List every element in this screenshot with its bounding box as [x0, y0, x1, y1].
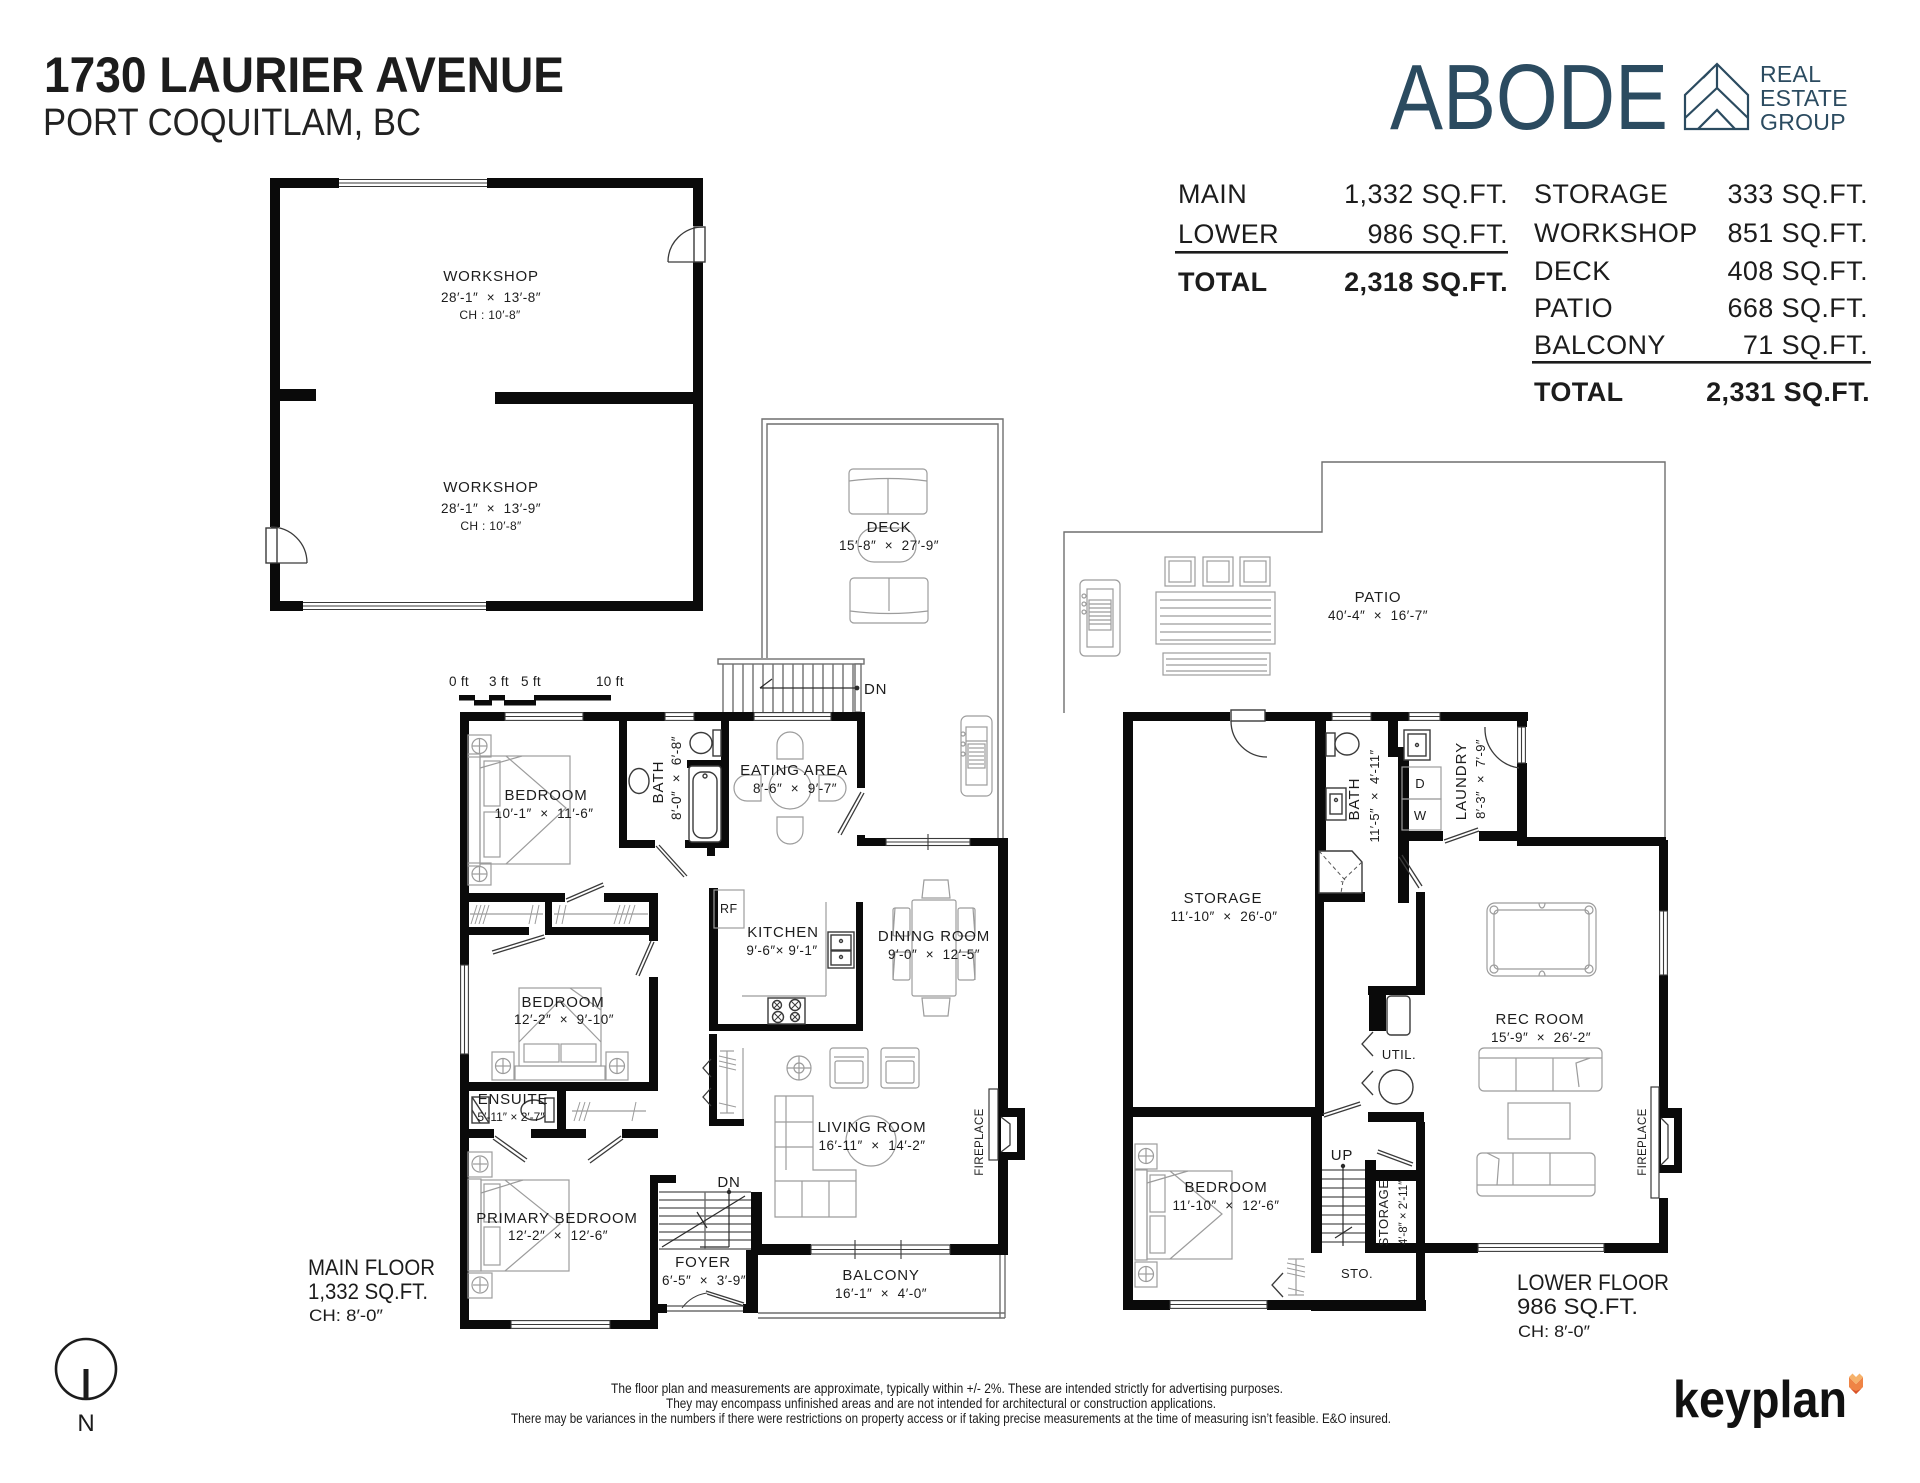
svg-text:16′-11″ × 14′-2″: 16′-11″ × 14′-2″ [818, 1138, 925, 1153]
svg-text:D: D [1415, 776, 1424, 791]
svg-text:PATIO: PATIO [1534, 293, 1613, 323]
svg-text:UP: UP [1331, 1147, 1353, 1164]
svg-text:BEDROOM: BEDROOM [1184, 1179, 1267, 1196]
svg-text:986 SQ.FT.: 986 SQ.FT. [1517, 1294, 1638, 1319]
svg-text:PRIMARY BEDROOM: PRIMARY BEDROOM [476, 1210, 637, 1227]
svg-text:DECK: DECK [867, 519, 912, 536]
svg-text:MAIN: MAIN [1178, 179, 1247, 209]
svg-text:8′-6″ × 9′-7″: 8′-6″ × 9′-7″ [753, 781, 837, 796]
svg-text:PATIO: PATIO [1355, 589, 1402, 606]
svg-text:TOTAL: TOTAL [1534, 377, 1624, 407]
svg-text:LIVING ROOM: LIVING ROOM [818, 1119, 927, 1136]
svg-text:STORAGE: STORAGE [1184, 890, 1263, 907]
svg-text:keyplan: keyplan [1673, 1371, 1847, 1429]
svg-text:RF: RF [720, 902, 738, 916]
svg-text:8′-3″ × 7′-9″: 8′-3″ × 7′-9″ [1473, 739, 1488, 819]
svg-text:ESTATE: ESTATE [1760, 85, 1848, 111]
svg-text:FIREPLACE: FIREPLACE [974, 1108, 986, 1176]
svg-text:11′-10″ × 26′-0″: 11′-10″ × 26′-0″ [1170, 909, 1277, 924]
svg-text:71 SQ.FT.: 71 SQ.FT. [1743, 330, 1868, 360]
svg-text:WORKSHOP: WORKSHOP [443, 268, 539, 285]
svg-text:15′-9″ × 26′-2″: 15′-9″ × 26′-2″ [1491, 1030, 1591, 1045]
svg-text:11′-5″ × 4′-11″: 11′-5″ × 4′-11″ [1367, 749, 1382, 842]
svg-text:10′-1″ × 11′-6″: 10′-1″ × 11′-6″ [494, 806, 593, 821]
svg-text:DECK: DECK [1534, 256, 1611, 286]
svg-text:28′-1″ × 13′-8″: 28′-1″ × 13′-8″ [441, 290, 541, 305]
svg-text:0 ft: 0 ft [449, 674, 469, 689]
svg-text:8′-0″ × 6′-8″: 8′-0″ × 6′-8″ [669, 736, 684, 820]
svg-text:6′-5″ × 3′-9″: 6′-5″ × 3′-9″ [662, 1273, 746, 1288]
svg-text:ENSUITE: ENSUITE [478, 1091, 549, 1108]
svg-text:851 SQ.FT.: 851 SQ.FT. [1727, 218, 1868, 248]
svg-text:PORT COQUITLAM, BC: PORT COQUITLAM, BC [43, 102, 421, 144]
svg-text:28′-1″ × 13′-9″: 28′-1″ × 13′-9″ [441, 501, 541, 516]
svg-text:11′-10″ × 12′-6″: 11′-10″ × 12′-6″ [1172, 1198, 1279, 1213]
svg-text:STORAGE: STORAGE [1534, 179, 1668, 209]
svg-text:BALCONY: BALCONY [842, 1267, 919, 1284]
svg-text:KITCHEN: KITCHEN [747, 924, 818, 941]
svg-text:TOTAL: TOTAL [1178, 267, 1268, 297]
svg-text:4′-8″ × 2′-11″: 4′-8″ × 2′-11″ [1398, 1181, 1410, 1245]
svg-text:DINING ROOM: DINING ROOM [878, 928, 990, 945]
svg-text:16′-1″ × 4′-0″: 16′-1″ × 4′-0″ [835, 1286, 927, 1301]
svg-text:GROUP: GROUP [1760, 109, 1846, 135]
svg-text:REC ROOM: REC ROOM [1496, 1011, 1585, 1028]
svg-text:STORAGE: STORAGE [1376, 1180, 1391, 1247]
svg-text:There may be variances in the: There may be variances in the numbers if… [511, 1411, 1391, 1426]
svg-text:5′-11″ × 2′-7″: 5′-11″ × 2′-7″ [477, 1110, 545, 1124]
svg-text:2,331 SQ.FT.: 2,331 SQ.FT. [1706, 377, 1870, 407]
svg-text:REAL: REAL [1760, 61, 1821, 87]
svg-text:FIREPLACE: FIREPLACE [1637, 1108, 1649, 1176]
svg-text:DN: DN [717, 1174, 740, 1191]
svg-text:5 ft: 5 ft [521, 674, 541, 689]
svg-text:1730 LAURIER AVENUE: 1730 LAURIER AVENUE [44, 47, 564, 103]
svg-text:They may encompass unfinished: They may encompass unfinished areas and … [666, 1396, 1216, 1411]
svg-text:FOYER: FOYER [675, 1254, 731, 1271]
svg-text:The floor plan and measurement: The floor plan and measurements are appr… [611, 1381, 1283, 1396]
svg-text:9′-0″ × 12′-5″: 9′-0″ × 12′-5″ [888, 947, 980, 962]
svg-text:10 ft: 10 ft [596, 674, 624, 689]
svg-text:408 SQ.FT.: 408 SQ.FT. [1727, 256, 1868, 286]
svg-text:333 SQ.FT.: 333 SQ.FT. [1727, 179, 1868, 209]
svg-text:1,332 SQ.FT.: 1,332 SQ.FT. [308, 1279, 428, 1304]
svg-text:BALCONY: BALCONY [1534, 330, 1666, 360]
svg-text:1,332 SQ.FT.: 1,332 SQ.FT. [1344, 179, 1508, 209]
svg-text:BEDROOM: BEDROOM [504, 787, 587, 804]
svg-text:CH : 10′-8″: CH : 10′-8″ [460, 519, 522, 533]
svg-text:BEDROOM: BEDROOM [521, 994, 604, 1011]
svg-text:CH: 8′-0″: CH: 8′-0″ [309, 1306, 383, 1325]
svg-text:WORKSHOP: WORKSHOP [1534, 218, 1698, 248]
svg-text:3 ft: 3 ft [489, 674, 509, 689]
svg-text:LAUNDRY: LAUNDRY [1453, 742, 1470, 820]
svg-text:DN: DN [864, 681, 887, 698]
svg-text:MAIN FLOOR: MAIN FLOOR [308, 1255, 435, 1280]
svg-text:N: N [77, 1410, 94, 1437]
svg-text:WORKSHOP: WORKSHOP [443, 479, 539, 496]
svg-text:BATH: BATH [650, 761, 667, 804]
svg-text:W: W [1414, 808, 1427, 823]
svg-text:15′-8″ × 27′-9″: 15′-8″ × 27′-9″ [839, 538, 939, 553]
svg-text:STO.: STO. [1341, 1266, 1373, 1281]
svg-text:BATH: BATH [1346, 778, 1363, 821]
svg-text:ABODE: ABODE [1390, 45, 1668, 149]
svg-text:LOWER: LOWER [1178, 219, 1279, 249]
svg-text:668 SQ.FT.: 668 SQ.FT. [1727, 293, 1868, 323]
svg-text:986 SQ.FT.: 986 SQ.FT. [1367, 219, 1508, 249]
svg-text:LOWER FLOOR: LOWER FLOOR [1517, 1270, 1669, 1295]
svg-text:CH: 8′-0″: CH: 8′-0″ [1518, 1322, 1590, 1341]
svg-text:12′-2″ × 9′-10″: 12′-2″ × 9′-10″ [514, 1012, 614, 1027]
svg-text:UTIL.: UTIL. [1382, 1047, 1416, 1062]
svg-text:CH : 10′-8″: CH : 10′-8″ [459, 308, 521, 322]
svg-text:9′-6″× 9′-1″: 9′-6″× 9′-1″ [746, 943, 817, 958]
svg-text:40′-4″ × 16′-7″: 40′-4″ × 16′-7″ [1328, 608, 1428, 623]
svg-text:2,318 SQ.FT.: 2,318 SQ.FT. [1344, 267, 1508, 297]
svg-text:12′-2″ × 12′-6″: 12′-2″ × 12′-6″ [508, 1228, 608, 1243]
svg-text:EATING AREA: EATING AREA [740, 762, 848, 779]
